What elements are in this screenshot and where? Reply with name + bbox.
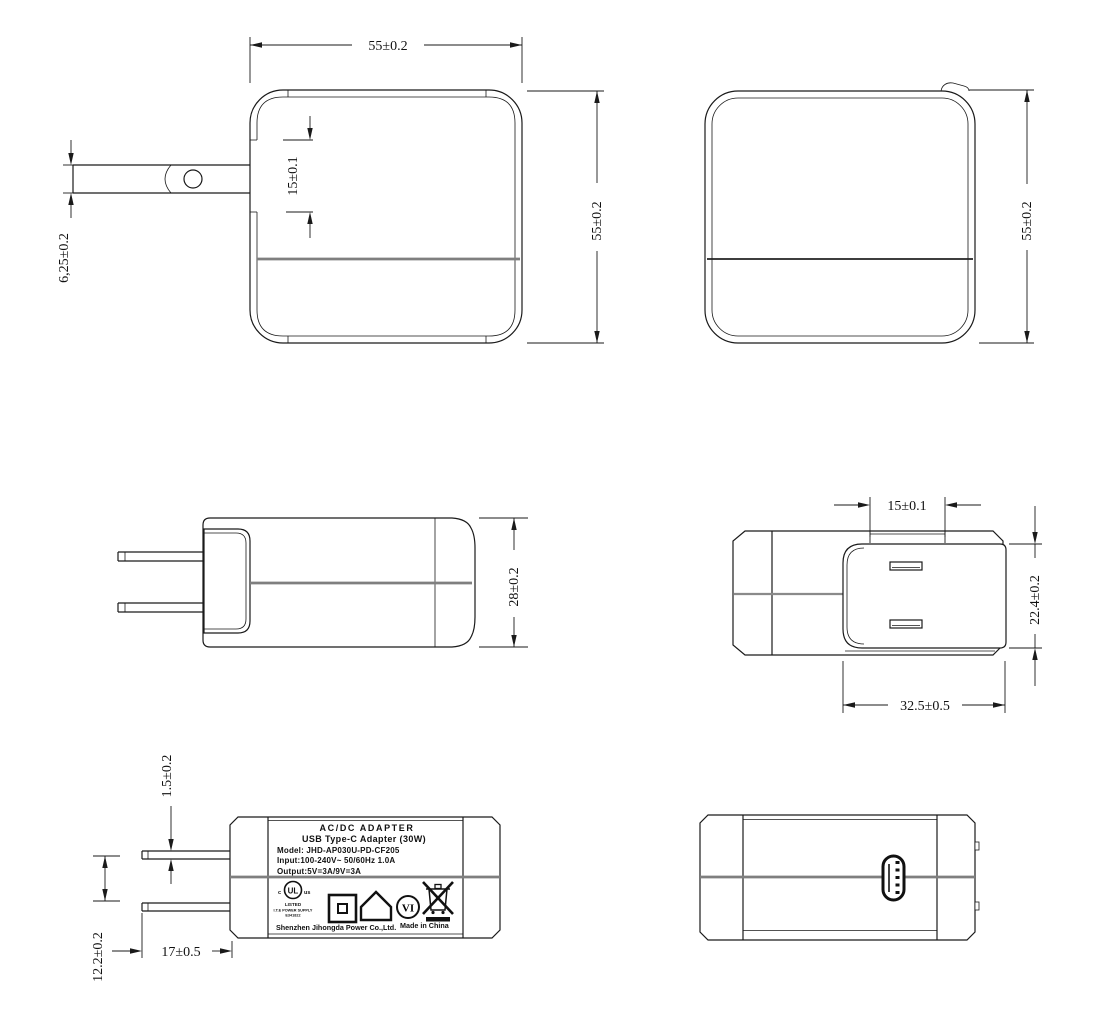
svg-text:55±0.2: 55±0.2 xyxy=(1020,201,1035,240)
plug-blades-side xyxy=(142,851,230,911)
usb-c-port xyxy=(883,856,904,900)
dim-top-plug-base-height: 22.4±0.2 xyxy=(1009,506,1043,686)
svg-text:55±0.2: 55±0.2 xyxy=(368,39,407,54)
svg-text:15±0.1: 15±0.1 xyxy=(286,156,301,195)
label-title: AC/DC ADAPTER xyxy=(320,823,415,833)
rear-view: 55±0.2 xyxy=(705,83,1035,343)
svg-text:VI: VI xyxy=(402,903,414,915)
plug-base-top xyxy=(843,544,1006,648)
svg-text:17±0.5: 17±0.5 xyxy=(161,945,200,960)
svg-text:E341822: E341822 xyxy=(285,914,300,918)
svg-text:15±0.1: 15±0.1 xyxy=(887,499,926,514)
side-tab xyxy=(975,902,979,910)
label-output: Output:5V=3A/9V=3A xyxy=(277,867,361,876)
dim-blade-length: 17±0.5 xyxy=(112,913,232,960)
dim-front-height: 55±0.2 xyxy=(527,91,605,343)
adapter-body-rear xyxy=(705,91,975,343)
top-view: 15±0.1 22.4±0.2 32.5±0.5 xyxy=(733,497,1043,714)
plug-blade-side xyxy=(73,165,257,193)
engineering-drawing-sheet: 55±0.2 55±0.2 15±0.1 xyxy=(0,0,1100,1011)
dim-front-blade-width: 6,25±0.2 xyxy=(57,140,76,283)
dim-blade-thickness: 1.5±0.2 xyxy=(160,755,175,884)
plug-blades-side xyxy=(118,552,204,612)
svg-text:55±0.2: 55±0.2 xyxy=(590,201,605,240)
label-model: Model: JHD-AP030U-PD-CF205 xyxy=(277,846,400,855)
blade-hole xyxy=(184,170,202,188)
svg-text:1.5±0.2: 1.5±0.2 xyxy=(160,755,175,798)
svg-text:c: c xyxy=(278,890,281,896)
svg-text:32.5±0.5: 32.5±0.5 xyxy=(900,699,950,714)
svg-text:12.2±0.2: 12.2±0.2 xyxy=(91,932,106,982)
svg-text:I.T.E POWER SUPPLY: I.T.E POWER SUPPLY xyxy=(274,909,313,913)
svg-text:us: us xyxy=(304,890,310,896)
adapter-body-front xyxy=(250,90,522,343)
dim-rear-height: 55±0.2 xyxy=(969,90,1035,343)
dim-top-plug-base-width: 32.5±0.5 xyxy=(843,661,1005,714)
side-view: 28±0.2 xyxy=(118,518,528,647)
bottom-port-view xyxy=(700,815,979,940)
label-view: AC/DC ADAPTER USB Type-C Adapter (30W) M… xyxy=(91,755,500,982)
dim-blade-spacing: 12.2±0.2 xyxy=(91,856,120,982)
label-origin: Made in China xyxy=(400,921,450,930)
dim-front-width: 55±0.2 xyxy=(250,37,522,83)
plug-base-side xyxy=(204,529,250,633)
side-tab xyxy=(975,842,979,850)
label-subtitle: USB Type-C Adapter (30W) xyxy=(302,834,426,844)
svg-text:28±0.2: 28±0.2 xyxy=(507,567,522,606)
svg-text:6,25±0.2: 6,25±0.2 xyxy=(57,233,72,283)
corner-tab xyxy=(941,83,969,91)
svg-text:UL: UL xyxy=(288,887,299,896)
label-manufacturer: Shenzhen Jihongda Power Co.,Ltd. xyxy=(276,923,396,932)
dim-side-thickness: 28±0.2 xyxy=(479,518,528,647)
label-input: Input:100-240V~ 50/60Hz 1.0A xyxy=(277,856,395,865)
svg-text:LISTED: LISTED xyxy=(285,902,302,907)
front-view: 55±0.2 55±0.2 15±0.1 xyxy=(57,37,605,343)
svg-text:22.4±0.2: 22.4±0.2 xyxy=(1028,575,1043,625)
